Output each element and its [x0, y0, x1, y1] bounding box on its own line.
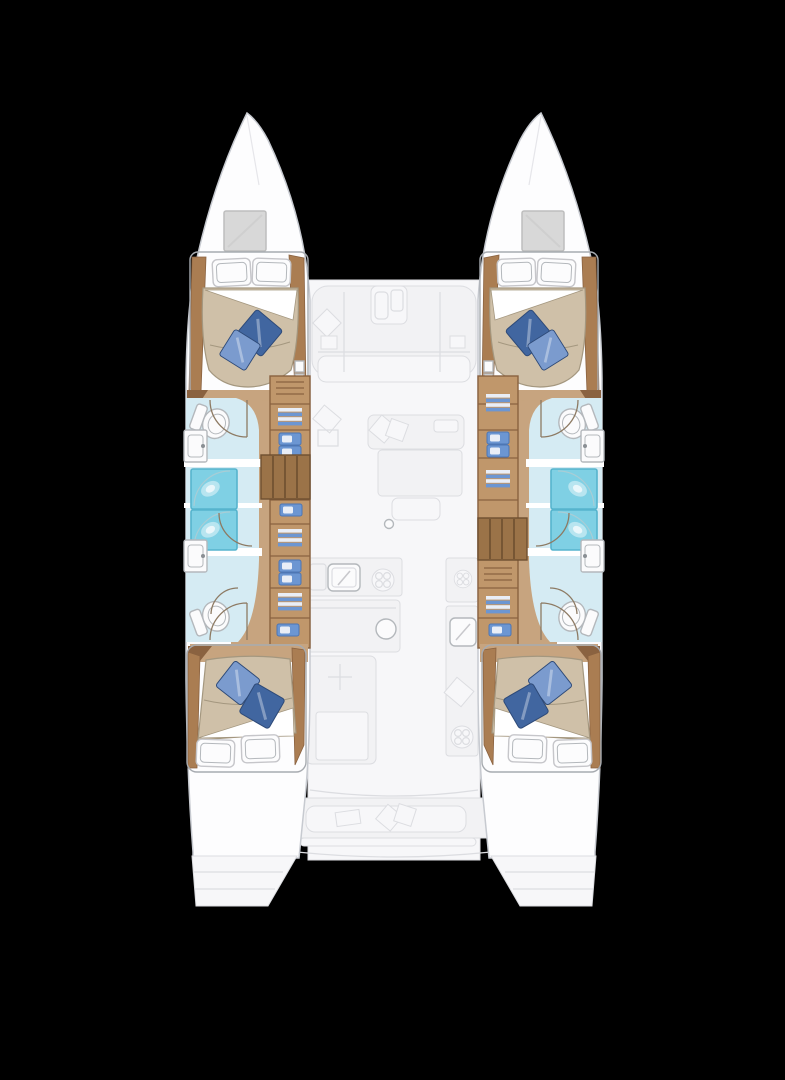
bench-cushion	[335, 809, 361, 826]
catamaran-floor-plan	[0, 0, 785, 1080]
lounge-cushion	[321, 336, 337, 349]
storage-box	[280, 504, 302, 516]
lounge-cushion	[450, 336, 465, 348]
storage-box	[279, 573, 301, 585]
galley-sink-stbd	[450, 618, 476, 646]
counter-panel	[316, 712, 368, 760]
saloon-table	[378, 450, 462, 496]
vanity-basin-blue	[277, 624, 299, 636]
round-sink	[376, 619, 396, 639]
aft-counter-stbd	[444, 606, 478, 756]
saloon-bench	[392, 498, 440, 520]
mast-post	[385, 520, 394, 529]
starboard-hull	[478, 113, 604, 906]
forward-lounge	[312, 286, 476, 382]
companionway-stairs	[261, 455, 310, 499]
storage-box	[487, 445, 509, 457]
storage-box	[279, 433, 301, 445]
sofa-headrest	[434, 420, 458, 432]
lounge-seat-front	[318, 356, 470, 382]
cockpit-table-edge	[300, 838, 476, 846]
stove	[454, 570, 472, 588]
vanity-basin-blue	[489, 624, 511, 636]
galley-sink	[328, 564, 360, 591]
stove	[372, 569, 394, 591]
floor-plan-canvas	[0, 0, 785, 1080]
companionway-stairs	[478, 518, 527, 560]
storage-box	[487, 432, 509, 444]
storage-box	[279, 560, 301, 572]
stove	[451, 726, 473, 748]
